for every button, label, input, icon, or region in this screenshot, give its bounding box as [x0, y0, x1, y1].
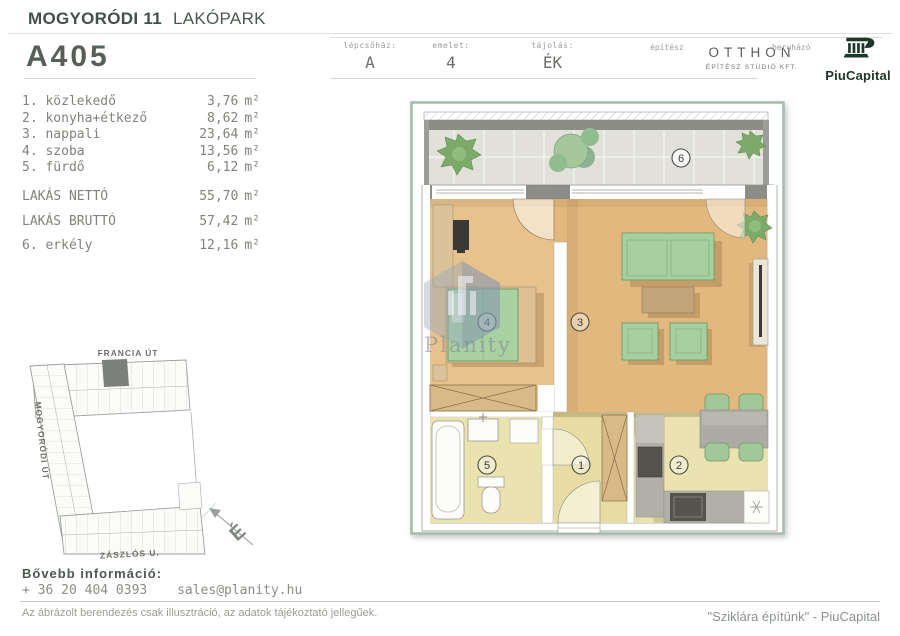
total-gross-value: 57,42 — [199, 214, 238, 229]
balcony-railing — [424, 112, 768, 120]
room-area-value: 8,62 — [207, 111, 238, 126]
architect-subtitle: ÉPÍTÉSZ STÚDIÓ KFT. — [688, 64, 816, 71]
site-plan: FRANCIA ÚT MOGYORÓDI ÚT ZÁSZLÓS U. É — [10, 342, 268, 568]
room-label: 2. konyha+étkező — [22, 111, 147, 128]
room-area-unit: m² — [244, 238, 260, 253]
balcony-row: 6. erkély 12,16m² — [22, 238, 260, 255]
room-list: 1. közlekedő 3,76m² 2. konyha+étkező 8,6… — [22, 94, 260, 255]
room-area-unit: m² — [244, 127, 260, 142]
room-area-value: 23,64 — [199, 127, 238, 142]
room-area-value: 6,12 — [207, 160, 238, 175]
contact-email: sales@planity.hu — [177, 583, 302, 598]
room-list-item: 2. konyha+étkező 8,62m² — [22, 111, 260, 128]
dining-chair — [739, 394, 763, 412]
room-label: 5. fürdő — [22, 160, 85, 177]
total-gross-row: LAKÁS BRUTTÓ 57,42m² — [22, 214, 260, 231]
balcony-value: 12,16 — [199, 238, 238, 253]
room-label: 3. nappali — [22, 127, 100, 144]
tv-living — [759, 265, 762, 337]
coffee-table — [642, 287, 694, 313]
room-number-1: 1 — [578, 460, 584, 472]
field-staircase-value: A — [330, 53, 410, 72]
field-orientation: tájolás: ÉK — [495, 41, 610, 72]
dining-chair — [705, 443, 729, 461]
bedroom-living-wall — [554, 242, 567, 412]
room-list-item: 3. nappali 23,64m² — [22, 127, 260, 144]
compass-north-arrow: É — [201, 503, 253, 546]
armchair-right — [670, 323, 707, 360]
total-net-row: LAKÁS NETTÓ 55,70m² — [22, 189, 260, 206]
balcony-area — [424, 112, 769, 185]
room-list-item: 4. szoba 13,56m² — [22, 144, 260, 161]
floor-plan: 6 4 3 5 1 2 Planity — [408, 99, 788, 539]
field-staircase-label: lépcsőház: — [330, 41, 410, 50]
tv-bedroom — [453, 220, 469, 250]
room-area-unit: m² — [244, 160, 260, 175]
datasheet-page: MOGYORÓDI 11 LAKÓPARK A405 lépcsőház: A … — [0, 0, 900, 636]
room-list-item: 1. közlekedő 3,76m² — [22, 94, 260, 111]
field-floor-value: 4 — [412, 53, 490, 72]
field-staircase: lépcsőház: A — [330, 41, 410, 72]
developer-name: PiuCapital — [824, 68, 892, 83]
field-orientation-label: tájolás: — [495, 41, 610, 50]
street-label-top: FRANCIA ÚT — [98, 347, 159, 358]
armchair-left — [622, 323, 658, 360]
developer-logo: PiuCapital — [824, 35, 892, 83]
dining-chair — [739, 443, 763, 461]
total-net-label: LAKÁS NETTÓ — [22, 189, 108, 206]
nightstand — [433, 365, 447, 381]
room-area-unit: m² — [244, 189, 260, 204]
room-number-5: 5 — [484, 460, 490, 472]
sink — [468, 419, 498, 441]
disclaimer-text: Az ábrázolt berendezés csak illusztráció… — [22, 607, 377, 619]
compass-label: É — [225, 520, 250, 546]
site-highlighted-unit — [102, 359, 129, 387]
dining-chair — [705, 394, 729, 412]
room-number-2: 2 — [676, 460, 682, 472]
header-bottom-border — [330, 78, 758, 79]
washing-machine — [510, 419, 538, 443]
room-list-item: 5. fürdő 6,12m² — [22, 160, 260, 177]
room-area-unit: m² — [244, 144, 260, 159]
room-area-unit: m² — [244, 214, 260, 229]
architect-label: építész — [650, 43, 684, 52]
company-tagline: "Sziklára építünk" - PiuCapital — [707, 609, 880, 624]
room-area-unit: m² — [244, 94, 260, 109]
footer-divider — [20, 601, 880, 602]
room-label: 1. közlekedő — [22, 94, 116, 111]
page-title-bold: MOGYORÓDI 11 — [28, 9, 162, 28]
contact-row: + 36 20 404 0393 sales@planity.hu — [22, 583, 302, 598]
field-orientation-value: ÉK — [495, 53, 610, 72]
watermark-text: Planity — [424, 333, 512, 357]
header-top-border — [330, 37, 882, 38]
page-title-rest: LAKÓPARK — [173, 9, 266, 28]
total-gross-label: LAKÁS BRUTTÓ — [22, 214, 116, 231]
room-area-value: 13,56 — [199, 144, 238, 159]
room-label: 4. szoba — [22, 144, 85, 161]
room-area-unit: m² — [244, 111, 260, 126]
title-divider — [8, 33, 892, 34]
piucapital-icon — [838, 35, 878, 62]
field-floor: emelet: 4 — [412, 41, 490, 72]
apartment-code: A405 — [26, 40, 110, 74]
developer-label: beruházó — [772, 43, 811, 52]
page-title: MOGYORÓDI 11 LAKÓPARK — [28, 9, 266, 29]
balcony-label: 6. erkély — [22, 238, 92, 255]
room-number-6: 6 — [678, 153, 684, 165]
room-area-value: 3,76 — [207, 94, 238, 109]
apartment-code-divider — [24, 78, 256, 79]
room-number-3: 3 — [577, 317, 583, 329]
field-floor-label: emelet: — [412, 41, 490, 50]
total-net-value: 55,70 — [199, 189, 238, 204]
toilet — [482, 487, 500, 513]
stove — [638, 447, 662, 477]
contact-info-label: Bővebb információ: — [22, 566, 162, 581]
site-building-outline — [30, 360, 205, 554]
contact-phone: + 36 20 404 0393 — [22, 583, 147, 598]
